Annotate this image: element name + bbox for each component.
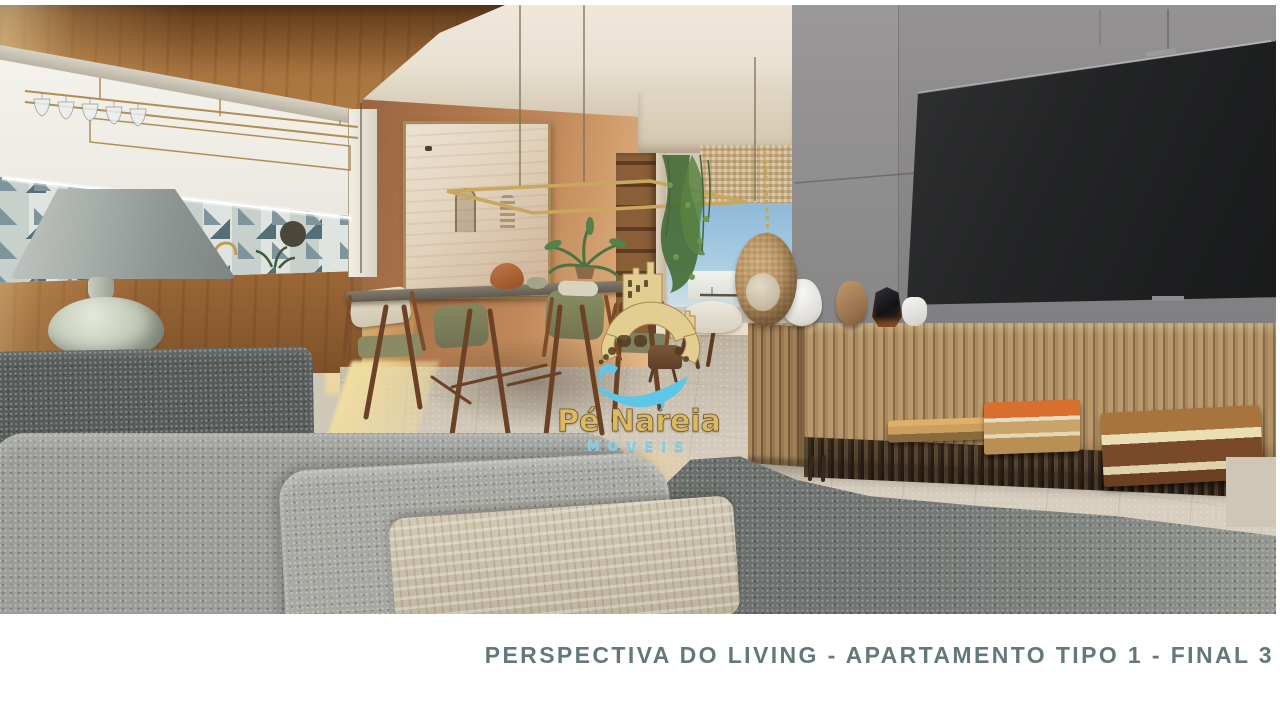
tv-details [918, 9, 1271, 301]
living-room-render: Pé Nareia MÓVEIS [0, 5, 1276, 614]
wall-seams [795, 9, 1100, 183]
watermark-logo [548, 258, 728, 418]
egg-chair-cushion [746, 273, 780, 311]
wine-glass-rack [25, 78, 358, 170]
caption: PERSPECTIVA DO LIVING - APARTAMENTO TIPO… [0, 642, 1274, 669]
sideboard-legs [810, 457, 824, 480]
pendant-light [447, 5, 755, 213]
watermark-subtitle-text: MÓVEIS [544, 440, 734, 455]
screenshot-root: Pé Nareia MÓVEIS PERSPECTIVA DO LIVING -… [0, 0, 1280, 720]
watermark-brand-text: Pé Nareia [544, 404, 734, 439]
egg-chair-chain [765, 152, 768, 237]
floor-wedge-right [1226, 457, 1276, 527]
